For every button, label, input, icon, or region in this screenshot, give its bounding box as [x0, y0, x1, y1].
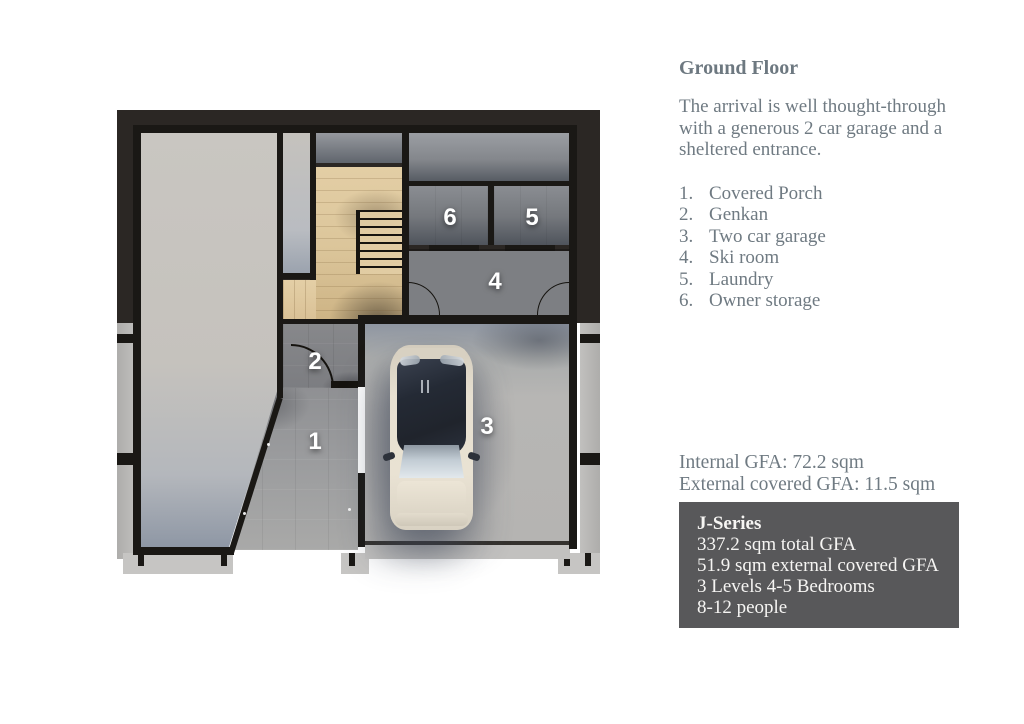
hallway-wood-floor — [283, 280, 316, 323]
hallway-floor — [283, 133, 310, 276]
wall — [358, 473, 365, 547]
room-number-genkan: 2 — [308, 348, 321, 376]
wall — [358, 323, 365, 387]
car-windshield — [399, 445, 464, 478]
stair-divider — [356, 210, 360, 274]
car-hood — [397, 481, 466, 513]
legend-label: Covered Porch — [709, 183, 981, 205]
legend-number: 2. — [679, 204, 709, 226]
car-roof-rail — [421, 380, 423, 393]
room-above-stairs-floor — [316, 133, 402, 163]
series-total-gfa: 337.2 sqm total GFA — [697, 534, 947, 555]
stair-treads — [360, 210, 402, 274]
exterior-apron-right — [580, 323, 600, 559]
legend-label: Owner storage — [709, 290, 981, 312]
room-number-garage: 3 — [480, 413, 493, 441]
car-roof-rail — [427, 380, 429, 393]
wall — [310, 133, 316, 280]
door-leaf-genkan — [331, 381, 358, 388]
series-people: 8-12 people — [697, 597, 947, 618]
room-legend: 1. Covered Porch 2. Genkan 3. Two car ga… — [679, 183, 981, 312]
page-title: Ground Floor — [679, 56, 981, 80]
legend-item: 4. Ski room — [679, 247, 981, 269]
floor-plan: 1 2 3 4 5 6 — [117, 110, 600, 575]
legend-item: 5. Laundry — [679, 269, 981, 291]
series-levels-bedrooms: 3 Levels 4-5 Bedrooms — [697, 576, 947, 597]
room-number-ski-room: 4 — [488, 268, 501, 296]
path-light-dot — [243, 512, 246, 515]
wall-stub — [580, 334, 600, 343]
series-external-gfa: 51.9 sqm external covered GFA — [697, 555, 947, 576]
series-title: J-Series — [697, 513, 947, 534]
room-number-laundry: 5 — [525, 204, 538, 232]
legend-number: 1. — [679, 183, 709, 205]
car-top-view — [390, 345, 473, 530]
description-text: The arrival is well thought-through with… — [679, 96, 981, 161]
wall — [280, 319, 358, 324]
wall — [569, 125, 577, 549]
wall-stub — [580, 453, 600, 465]
car-roof — [397, 359, 466, 455]
legend-label: Laundry — [709, 269, 981, 291]
wall — [277, 273, 316, 279]
legend-label: Two car garage — [709, 226, 981, 248]
legend-number: 5. — [679, 269, 709, 291]
path-light-dot — [267, 443, 270, 446]
garage-apron — [365, 545, 570, 559]
legend-number: 3. — [679, 226, 709, 248]
wall-tick — [349, 553, 355, 566]
legend-label: Genkan — [709, 204, 981, 226]
legend-number: 6. — [679, 290, 709, 312]
legend-item: 1. Covered Porch — [679, 183, 981, 205]
legend-item: 6. Owner storage — [679, 290, 981, 312]
room-number-owner-storage: 6 — [443, 204, 456, 232]
internal-gfa-text: Internal GFA: 72.2 sqm — [679, 452, 981, 474]
wall — [488, 186, 494, 245]
room-number-covered-porch: 1 — [308, 428, 321, 456]
legend-item: 3. Two car garage — [679, 226, 981, 248]
info-panel: Ground Floor The arrival is well thought… — [679, 56, 981, 312]
threshold-line — [409, 249, 570, 251]
legend-item: 2. Genkan — [679, 204, 981, 226]
path-light-dot — [348, 508, 351, 511]
wall — [133, 125, 577, 133]
external-gfa-text: External covered GFA: 11.5 sqm — [679, 474, 981, 496]
legend-label: Ski room — [709, 247, 981, 269]
series-info-box: J-Series 337.2 sqm total GFA 51.9 sqm ex… — [679, 502, 959, 628]
car-front-bumper — [395, 513, 468, 526]
wall — [133, 125, 141, 555]
wall — [133, 547, 234, 555]
legend-number: 4. — [679, 247, 709, 269]
gfa-summary: Internal GFA: 72.2 sqm External covered … — [679, 452, 981, 628]
wall-tick — [585, 553, 591, 566]
wall — [277, 133, 283, 398]
top-right-room-floor — [409, 133, 570, 181]
wall — [358, 315, 577, 324]
